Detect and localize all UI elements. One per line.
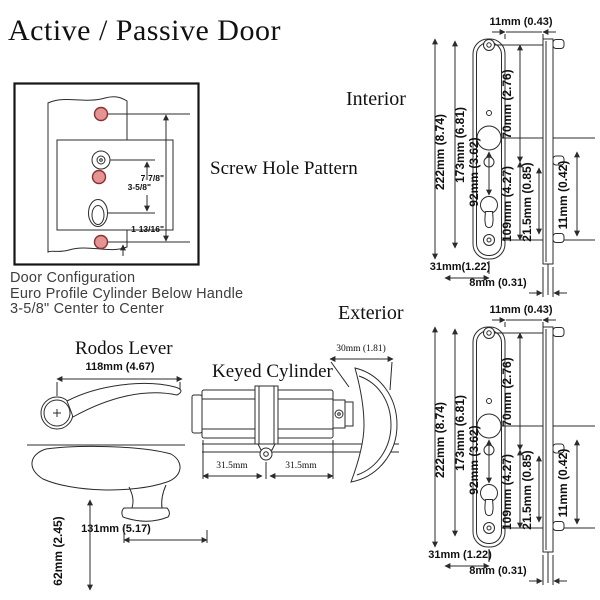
- rodos-lever-drawing: 118mm (4.67) 131mm (5.17) 62mm (2.45): [10, 358, 210, 600]
- cam-lobe: [260, 448, 272, 460]
- page-title: Active / Passive Door: [8, 14, 281, 48]
- dim-screw-spacing-top: 70mm (2.76): [500, 69, 514, 138]
- diagram-canvas: Active / Passive Door: [0, 0, 600, 600]
- euro-cylinder-hole: [481, 197, 498, 214]
- dim-right-half: 31.5mm: [285, 461, 317, 471]
- dim-handle-to-cylinder: 92mm (3.62): [467, 425, 481, 494]
- dim-cylinder-offset: 21.5mm (0.85): [520, 450, 534, 529]
- dim-top-width: 11mm (0.43): [490, 304, 553, 316]
- dim-lever-side-length: 131mm (5.17): [81, 523, 151, 535]
- dim-thumbturn-width: 30mm (1.81): [336, 343, 386, 354]
- exterior-drawing: 11mm (0.43) 222mm (8.74) 173mm (6.81) 92…: [410, 300, 600, 590]
- screw-hole-middle: [93, 171, 106, 184]
- config-line-3: 3-5/8" Center to Center: [10, 302, 243, 318]
- dim-plate-width: 31mm (1.22): [428, 549, 492, 561]
- screw-hole-top: [95, 108, 108, 121]
- backplate-outline: [57, 140, 173, 230]
- cylinder-cam-block: [255, 386, 278, 444]
- cylinder-body: [192, 386, 333, 460]
- screw-hole-pattern-label: Screw Hole Pattern: [210, 158, 358, 180]
- dim-handle-to-cylinder: 92mm (3.62): [467, 137, 481, 206]
- dim-side-depth: 11mm (0.42): [556, 161, 570, 230]
- dim-screw-spacing-bottom: 109mm (4.27): [500, 166, 514, 242]
- config-line-2: Euro Profile Cylinder Below Handle: [10, 287, 243, 303]
- dim-top-width: 11mm (0.43): [490, 16, 553, 28]
- dim-plate-height: 173mm (6.81): [453, 395, 467, 471]
- dim-side-depth: 11mm (0.42): [556, 449, 570, 518]
- dim-cylinder-offset: 21.5mm (0.85): [520, 162, 534, 241]
- dim-screw-spacing-bottom: 109mm (4.27): [500, 454, 514, 530]
- keyed-cylinder-drawing: 30mm (1.81) 31.5mm 31.5mm: [188, 340, 405, 490]
- door-configuration-text: Door Configuration Euro Profile Cylinder…: [10, 271, 243, 318]
- lever-top-view: [41, 383, 181, 429]
- euro-cylinder-hole: [481, 485, 498, 502]
- dim-edge-thickness: 8mm (0.31): [469, 565, 527, 577]
- dim-plate-height: 173mm (6.81): [453, 107, 467, 183]
- dim-bottom: 1-13/16": [131, 224, 164, 234]
- dim-center: 3-5/8": [128, 182, 151, 192]
- screw-hole-pattern-drawing: 7-7/8" 3-5/8" 1-13/16": [13, 82, 200, 266]
- dim-lever-height: 62mm (2.45): [51, 516, 65, 585]
- lever-side-view: [27, 445, 185, 521]
- exterior-label: Exterior: [338, 302, 404, 325]
- dim-overall-height: 222mm (8.74): [433, 402, 447, 478]
- cylinder-hole: [89, 200, 108, 227]
- dim-screw-spacing-top: 70mm (2.76): [500, 357, 514, 426]
- dim-plate-width: 31mm(1.22): [430, 261, 491, 273]
- thumbturn: [333, 368, 397, 482]
- dim-left-half: 31.5mm: [216, 461, 248, 471]
- interior-drawing: 11mm (0.43) 222mm (8.74) 173mm (6.81) 92…: [410, 12, 600, 302]
- dim-lever-top-length: 118mm (4.67): [85, 361, 154, 373]
- dim-overall-height: 222mm (8.74): [433, 114, 447, 190]
- dim-edge-thickness: 8mm (0.31): [469, 277, 527, 289]
- screw-hole-bottom: [95, 236, 108, 249]
- rodos-lever-label: Rodos Lever: [75, 338, 173, 360]
- config-line-1: Door Configuration: [10, 271, 243, 287]
- interior-label: Interior: [346, 88, 406, 111]
